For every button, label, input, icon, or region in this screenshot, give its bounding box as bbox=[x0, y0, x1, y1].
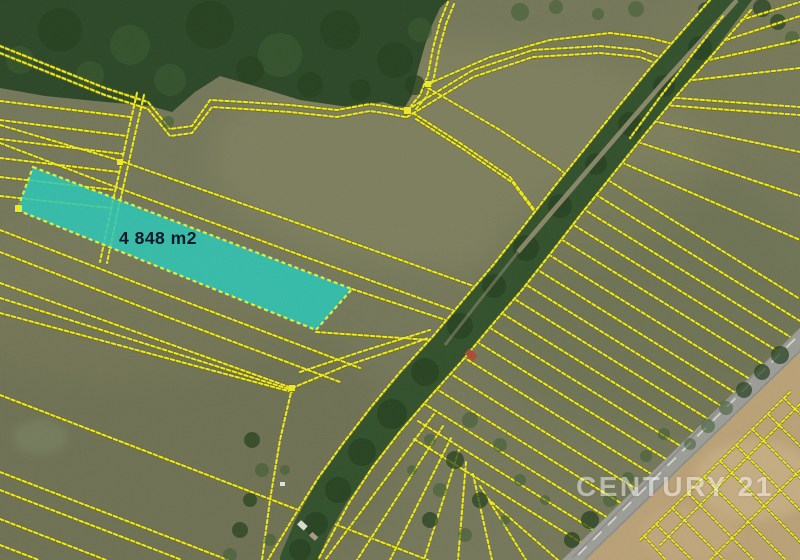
aerial-map-view[interactable]: 4 848 m2 CENTURY 21 bbox=[0, 0, 800, 560]
parcel-area-label: 4 848 m2 bbox=[119, 228, 279, 249]
century21-watermark: CENTURY 21 bbox=[576, 471, 774, 503]
